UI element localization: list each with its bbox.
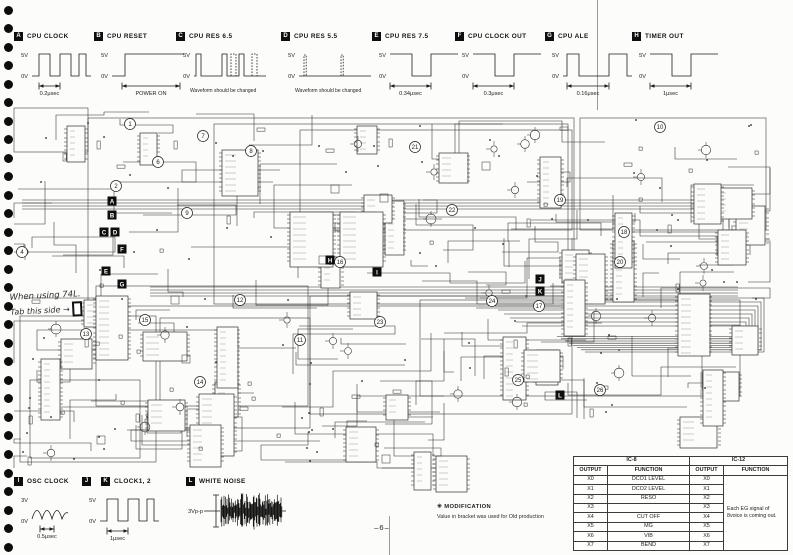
svg-text:0V: 0V: [552, 74, 559, 80]
waveform-title: CPU ALE: [558, 33, 589, 40]
waveform-panel-h: HTIMER OUT5V0V1μsec: [632, 31, 750, 100]
svg-text:15: 15: [142, 318, 149, 324]
svg-text:5V: 5V: [552, 53, 559, 59]
testpoint-badge-d: D: [281, 32, 290, 41]
svg-text:25: 25: [515, 378, 522, 384]
function-cell: DCO1 LEVEL: [608, 475, 690, 484]
merged-function-cell: Each EG signal of 8voice is coming out.: [724, 475, 788, 550]
svg-text:5V: 5V: [379, 53, 386, 59]
schematic-circled-number-11: 11: [295, 335, 306, 346]
svg-text:0V: 0V: [288, 74, 295, 80]
modification-title: ✳ MODIFICATION: [437, 504, 544, 510]
testpoint-badge-f: F: [455, 32, 464, 41]
svg-text:0V: 0V: [21, 519, 28, 525]
svg-text:0V: 0V: [379, 74, 386, 80]
svg-text:16: 16: [337, 260, 344, 266]
svg-text:F: F: [120, 247, 124, 253]
waveform-title: CPU CLOCK: [27, 33, 69, 40]
schematic-circled-number-25: 25: [513, 375, 524, 386]
function-cell: [608, 503, 690, 512]
schematic-circled-number-24: 24: [487, 296, 498, 307]
output-cell: X6: [690, 532, 724, 541]
schematic-circled-number-23: 23: [375, 317, 386, 328]
svg-text:5V: 5V: [462, 53, 469, 59]
schematic-circled-number-13: 13: [81, 329, 92, 340]
schematic-circled-number-4: 4: [17, 247, 28, 258]
function-cell: MG: [608, 522, 690, 531]
svg-text:Waveform should be changed: Waveform should be changed: [295, 88, 361, 94]
waveform-plot-square: 5V0V1μsec: [82, 487, 192, 545]
schematic-testpoint-j: J: [536, 275, 545, 284]
testpoint-badge-e: E: [372, 32, 381, 41]
function-cell: DCO2 LEVEL: [608, 485, 690, 494]
output-cell: X3: [574, 503, 608, 512]
table-row: X0DCO1 LEVELX0Each EG signal of 8voice i…: [574, 475, 788, 484]
schematic-circled-number-22: 22: [447, 205, 458, 216]
svg-text:22: 22: [449, 208, 456, 214]
testpoint-badge-k: K: [101, 477, 110, 486]
testpoint-badge-l: L: [186, 477, 195, 486]
schematic-testpoint-h: H: [326, 256, 335, 265]
output-cell: X0: [574, 475, 608, 484]
page-number: –6–: [352, 523, 412, 532]
waveform-title: CPU RESET: [107, 33, 147, 40]
output-cell: X3: [690, 503, 724, 512]
svg-text:A: A: [110, 199, 115, 205]
schematic-testpoint-k: K: [536, 287, 545, 296]
svg-text:0.2μsec: 0.2μsec: [40, 91, 60, 97]
output-cell: X2: [574, 494, 608, 503]
waveform-panel-header: CCPU RES 6.5: [176, 31, 294, 41]
table-column-header: FUNCTION: [724, 466, 788, 475]
svg-text:0V: 0V: [101, 74, 108, 80]
svg-text:18: 18: [621, 230, 628, 236]
waveform-panel-header: HTIMER OUT: [632, 31, 750, 41]
svg-text:17: 17: [536, 304, 543, 310]
schematic-circled-number-19: 19: [555, 195, 566, 206]
table-column-header: OUTPUT: [574, 466, 608, 475]
scanned-schematic-page: ABCDFEGHIJKL1246789101112131415161718192…: [0, 0, 793, 555]
testpoint-badge-h: H: [632, 32, 641, 41]
function-cell: VIB: [608, 532, 690, 541]
output-cell: X5: [690, 522, 724, 531]
schematic-circled-number-18: 18: [619, 227, 630, 238]
schematic-testpoint-l: L: [556, 391, 565, 400]
waveform-title: WHITE NOISE: [199, 478, 246, 485]
testpoint-badge-j: J: [82, 477, 91, 486]
schematic-circled-number-15: 15: [140, 315, 151, 326]
svg-text:26: 26: [597, 388, 604, 394]
waveform-panel-l: LWHITE NOISE3Vp-p: [186, 476, 304, 545]
schematic-circled-number-10: 10: [655, 122, 666, 133]
svg-text:0.3μsec: 0.3μsec: [484, 91, 504, 97]
output-cell: X2: [690, 494, 724, 503]
svg-text:E: E: [104, 269, 108, 275]
waveform-panel-jk: JKCLOCK1, 25V0V1μsec: [82, 476, 200, 545]
svg-text:14: 14: [197, 380, 204, 386]
ic-function-table: IC-8IC-12OUTPUTFUNCTIONOUTPUTFUNCTIONX0D…: [573, 456, 788, 551]
waveform-panel-c: CCPU RES 6.55V0VWaveform should be chang…: [176, 31, 294, 100]
svg-text:23: 23: [377, 320, 384, 326]
modification-note: ✳ MODIFICATION Value in bracket was used…: [437, 504, 544, 520]
handwritten-note: When using 74L. Tab this side →: [9, 289, 83, 320]
testpoint-badge-c: C: [176, 32, 185, 41]
schematic-artwork: [14, 108, 770, 492]
schematic-circled-number-7: 7: [198, 131, 209, 142]
svg-text:5V: 5V: [101, 53, 108, 59]
schematic-circled-number-20: 20: [615, 257, 626, 268]
svg-text:3Vp-p: 3Vp-p: [188, 509, 203, 515]
svg-text:1μsec: 1μsec: [110, 536, 125, 542]
schematic-testpoint-d: D: [111, 228, 120, 237]
schematic-circled-number-6: 6: [153, 157, 164, 168]
svg-text:1μsec: 1μsec: [663, 91, 678, 97]
svg-text:20: 20: [617, 260, 624, 266]
output-cell: X0: [690, 475, 724, 484]
svg-text:0.34μsec: 0.34μsec: [399, 91, 422, 97]
svg-text:B: B: [110, 213, 115, 219]
waveform-panel-header: JKCLOCK1, 2: [82, 476, 200, 486]
schematic-circled-number-8: 8: [246, 146, 257, 157]
output-cell: X4: [690, 513, 724, 522]
testpoint-badge-a: A: [14, 32, 23, 41]
schematic-testpoint-f: F: [118, 245, 127, 254]
svg-text:12: 12: [237, 298, 244, 304]
table-group-header: IC-8: [574, 457, 690, 466]
waveform-title: CPU CLOCK OUT: [468, 33, 526, 40]
function-cell: RESO: [608, 494, 690, 503]
waveform-panel-header: LWHITE NOISE: [186, 476, 304, 486]
schematic-testpoint-i: I: [373, 268, 382, 277]
svg-text:0.5μsec: 0.5μsec: [37, 534, 57, 540]
output-cell: X7: [690, 541, 724, 550]
testpoint-badge-b: B: [94, 32, 103, 41]
svg-text:24: 24: [489, 299, 496, 305]
svg-text:5V: 5V: [288, 53, 295, 59]
schematic-circled-number-16: 16: [335, 257, 346, 268]
svg-text:13: 13: [83, 332, 90, 338]
output-cell: X1: [690, 485, 724, 494]
svg-text:POWER ON: POWER ON: [135, 91, 166, 97]
svg-text:C: C: [102, 230, 107, 236]
svg-text:21: 21: [412, 145, 419, 151]
schematic-circled-number-14: 14: [195, 377, 206, 388]
table-column-header: OUTPUT: [690, 466, 724, 475]
output-cell: X4: [574, 513, 608, 522]
svg-text:0V: 0V: [89, 519, 96, 525]
waveform-plot-pulses: 5V0VWaveform should be changed: [176, 42, 286, 100]
output-cell: X6: [574, 532, 608, 541]
table-column-header: FUNCTION: [608, 466, 690, 475]
svg-text:K: K: [538, 289, 543, 295]
waveform-title: TIMER OUT: [645, 33, 684, 40]
svg-text:0V: 0V: [639, 74, 646, 80]
schematic-testpoint-a: A: [108, 197, 117, 206]
svg-text:5V: 5V: [639, 53, 646, 59]
testpoint-badge-g: G: [545, 32, 554, 41]
svg-text:J: J: [538, 277, 541, 283]
modification-body: Value in bracket was used for Old produc…: [437, 514, 544, 520]
schematic-circled-number-9: 9: [182, 208, 193, 219]
output-cell: X5: [574, 522, 608, 531]
svg-text:11: 11: [297, 338, 304, 344]
schematic-testpoint-g: G: [118, 280, 127, 289]
output-cell: X7: [574, 541, 608, 550]
svg-text:5V: 5V: [21, 53, 28, 59]
schematic-circled-number-1: 1: [125, 119, 136, 130]
schematic-circled-number-2: 2: [111, 181, 122, 192]
waveform-plot-noise: 3Vp-p: [186, 487, 296, 545]
svg-text:D: D: [113, 230, 118, 236]
svg-text:0.16μsec: 0.16μsec: [577, 91, 600, 97]
schematic-circled-number-12: 12: [235, 295, 246, 306]
schematic-testpoint-c: C: [100, 228, 109, 237]
svg-text:5V: 5V: [89, 498, 96, 504]
svg-text:H: H: [328, 258, 332, 264]
waveform-title: CPU RES 7.5: [385, 33, 428, 40]
schematic-circled-number-26: 26: [595, 385, 606, 396]
svg-text:0V: 0V: [183, 74, 190, 80]
output-cell: X1: [574, 485, 608, 494]
schematic-circled-number-17: 17: [534, 301, 545, 312]
waveform-title: CPU RES 5.5: [294, 33, 337, 40]
schematic-testpoint-b: B: [108, 211, 117, 220]
waveform-title: CPU RES 6.5: [189, 33, 232, 40]
table-group-header: IC-12: [690, 457, 788, 466]
schematic-testpoint-e: E: [102, 267, 111, 276]
schematic-circled-number-21: 21: [410, 142, 421, 153]
svg-text:G: G: [120, 282, 125, 288]
svg-text:5V: 5V: [183, 53, 190, 59]
waveform-title: OSC CLOCK: [27, 478, 69, 485]
waveform-plot-squarewide: 5V0V1μsec: [632, 42, 742, 100]
testpoint-badge-i: I: [14, 477, 23, 486]
svg-text:0V: 0V: [21, 74, 28, 80]
function-cell: BEND: [608, 541, 690, 550]
fold-line-bottom: [389, 516, 390, 555]
svg-text:19: 19: [557, 198, 564, 204]
svg-text:Waveform should be changed: Waveform should be changed: [190, 88, 256, 94]
svg-text:L: L: [558, 393, 562, 399]
svg-text:10: 10: [657, 125, 664, 131]
svg-text:3V: 3V: [21, 498, 28, 504]
svg-text:0V: 0V: [462, 74, 469, 80]
waveform-title: CLOCK1, 2: [114, 478, 151, 485]
pointed-component: [72, 301, 83, 317]
function-cell: CUT OFF: [608, 513, 690, 522]
